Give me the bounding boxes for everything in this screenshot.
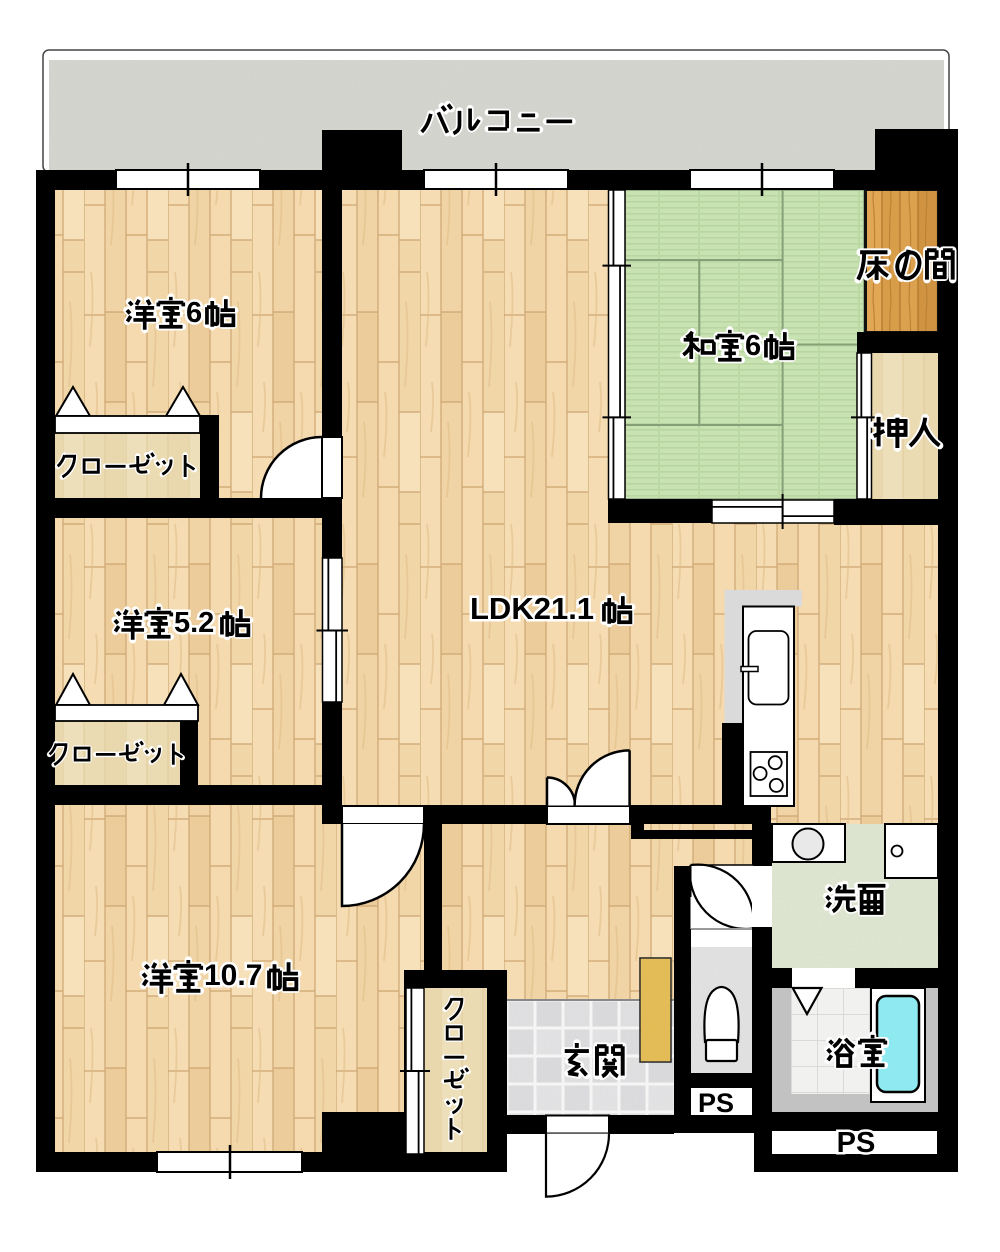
svg-text:10.7: 10.7 xyxy=(204,959,262,992)
svg-text:PS: PS xyxy=(698,1088,734,1118)
svg-text:LDK21.1: LDK21.1 xyxy=(470,591,594,626)
svg-text:6: 6 xyxy=(186,297,202,329)
svg-text:6: 6 xyxy=(745,330,761,362)
svg-text:PS: PS xyxy=(837,1127,876,1159)
svg-text:5.2: 5.2 xyxy=(174,607,214,639)
